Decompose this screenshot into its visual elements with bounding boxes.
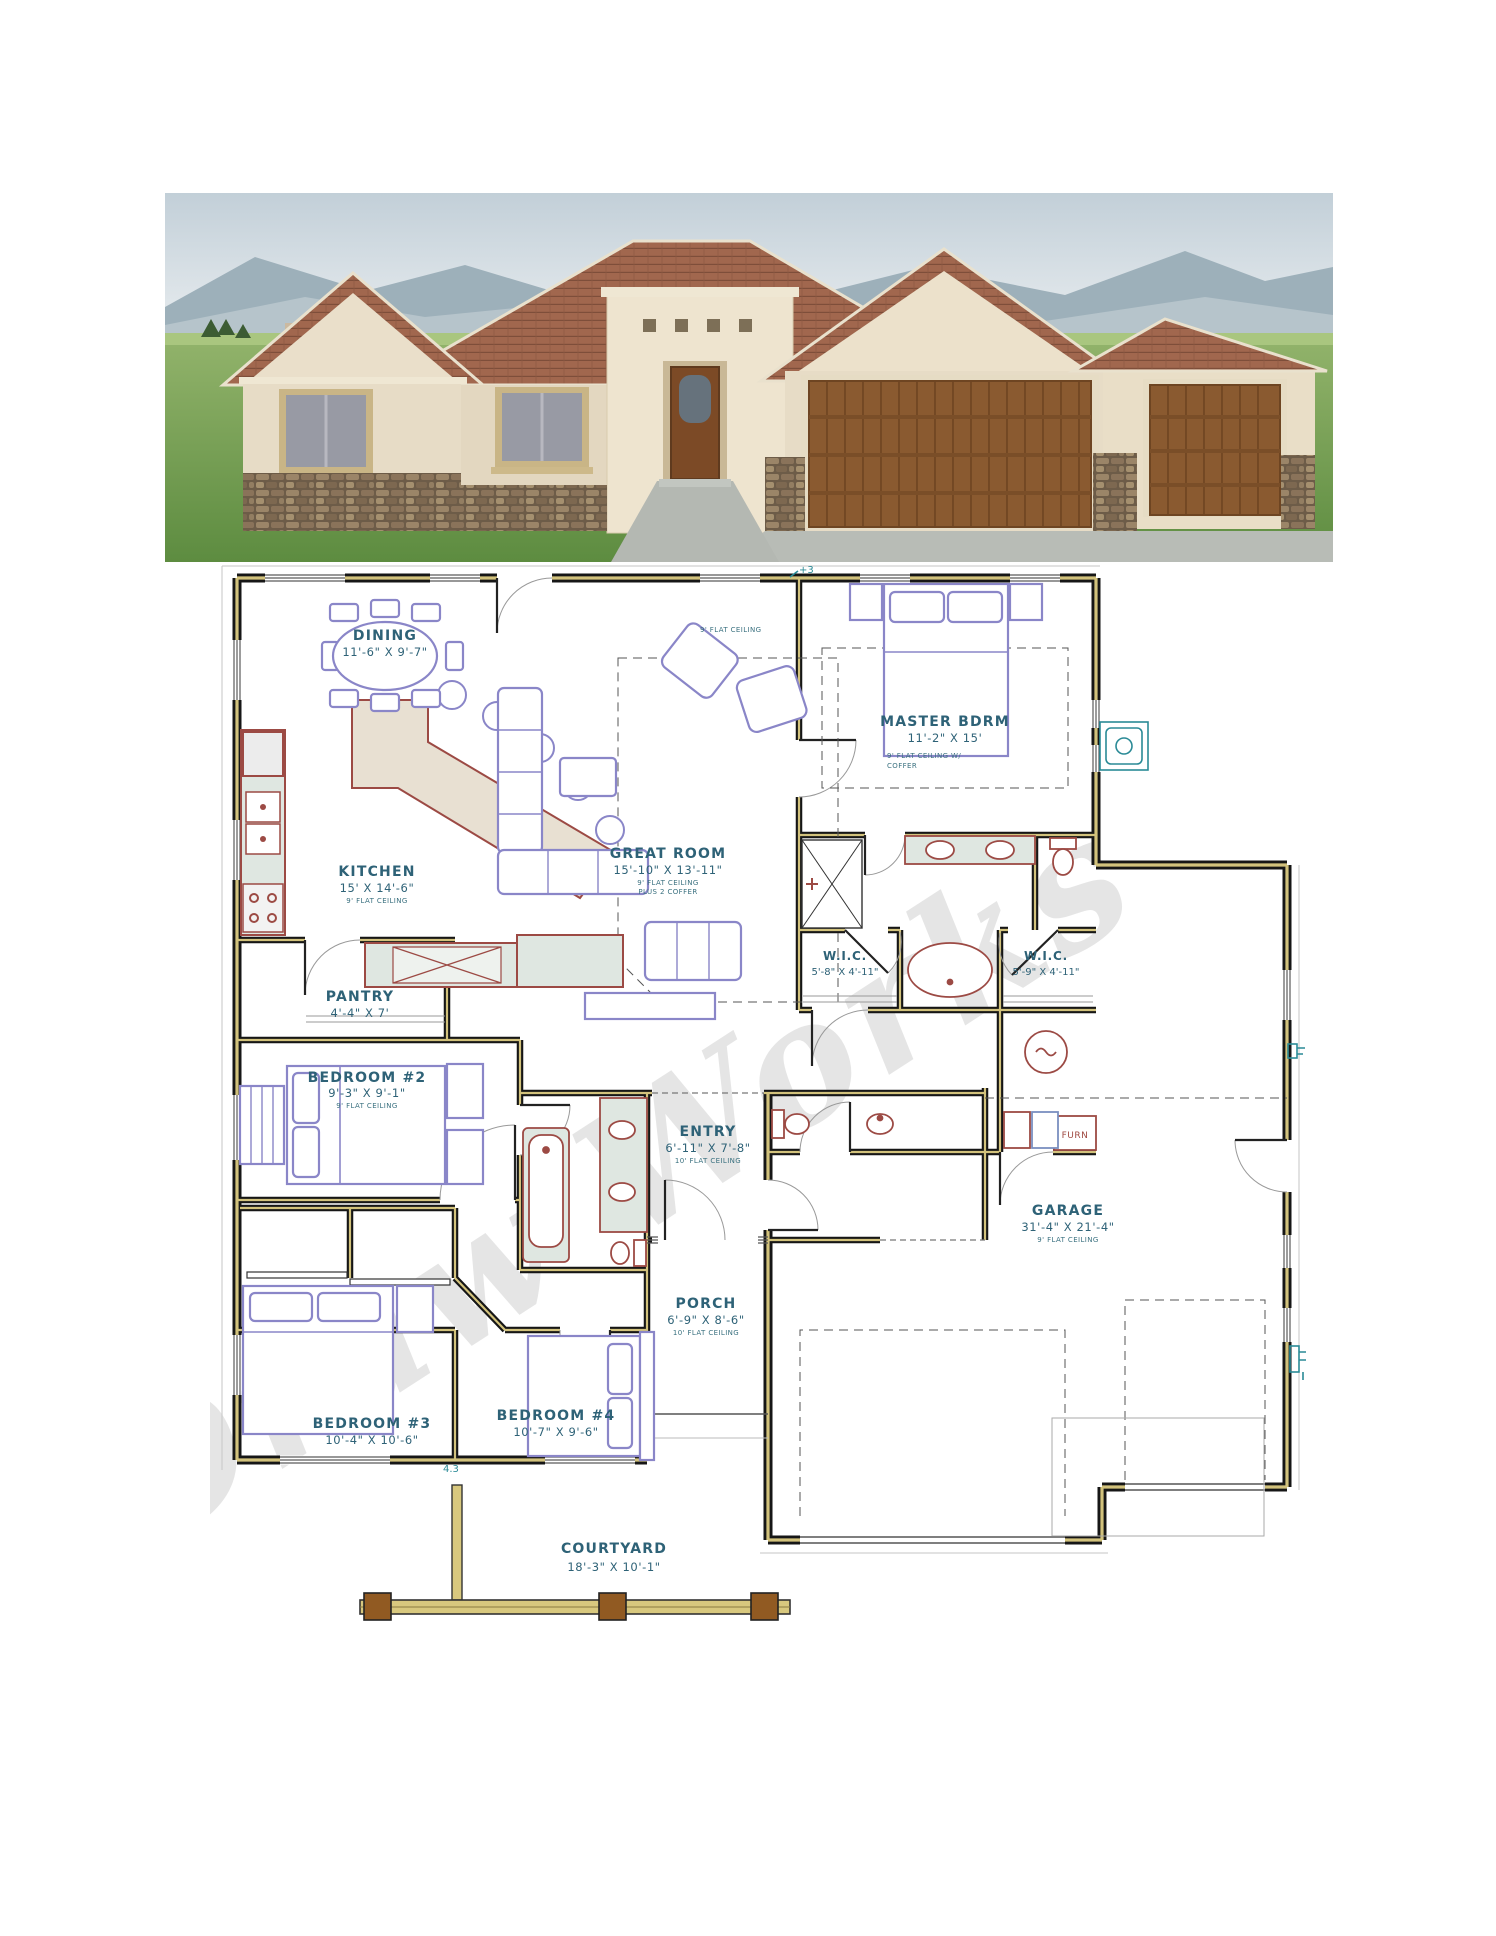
top-ceiling-note: 9' FLAT CEILING xyxy=(700,626,761,634)
room-dims-entry: 6'-11" X 7'-8" xyxy=(665,1141,750,1155)
room-label-entry: ENTRY xyxy=(680,1124,737,1140)
room-dims-wic-left: 5'-8" X 4'-11" xyxy=(812,967,879,978)
garage-door-large xyxy=(801,375,1099,527)
room-dims-bedroom4: 10'-7" X 9'-6" xyxy=(513,1425,598,1439)
room-label-wic-right: W.I.C. xyxy=(1024,949,1068,963)
room-note-garage: 9' FLAT CEILING xyxy=(1037,1236,1098,1244)
room-label-great-room: GREAT ROOM xyxy=(610,846,727,862)
room-note-porch: 10' FLAT CEILING xyxy=(673,1329,739,1337)
tower-cap xyxy=(601,287,799,297)
room-label-porch: PORCH xyxy=(676,1296,737,1312)
front-step xyxy=(659,479,731,487)
master-tub xyxy=(908,943,992,997)
room-label-pantry: PANTRY xyxy=(326,989,394,1005)
room-label-bedroom4: BEDROOM #4 xyxy=(497,1408,616,1424)
garage-overhead xyxy=(800,1098,1287,1516)
room-note2-master: COFFER xyxy=(887,762,917,770)
coffee-table xyxy=(560,758,616,796)
ac-condenser-icon xyxy=(1100,722,1148,770)
room-note-entry: 10' FLAT CEILING xyxy=(675,1157,741,1165)
room-dims-dining: 11'-6" X 9'-7" xyxy=(342,645,427,659)
water-heater xyxy=(1025,1031,1067,1073)
room-label-bedroom3: BEDROOM #3 xyxy=(313,1416,432,1432)
dryer xyxy=(1032,1112,1058,1148)
door-glass xyxy=(679,375,711,423)
window-sill xyxy=(491,467,593,474)
room-label-cour­tyard: COURTYARD xyxy=(561,1541,667,1557)
bedroom2-shelf xyxy=(240,1086,284,1164)
room-dims-wic-right: 5'-9" X 4'-11" xyxy=(1013,967,1080,978)
room-dims-master: 11'-2" X 15' xyxy=(908,731,983,745)
loveseat xyxy=(645,922,741,980)
house-3d-rendering xyxy=(165,185,1333,562)
hall-bath-tub xyxy=(523,1128,569,1262)
refrigerator xyxy=(243,732,283,776)
master-vanity xyxy=(905,836,1035,864)
rendering-scene xyxy=(165,193,1333,562)
closet-slider-right xyxy=(350,1279,450,1285)
room-dims-bedroom2: 9'-3" X 9'-1" xyxy=(328,1086,405,1100)
room-label-garage: GARAGE xyxy=(1032,1203,1104,1219)
room-label-master: MASTER BDRM xyxy=(880,714,1010,730)
room-label-bedroom2: BEDROOM #2 xyxy=(308,1070,427,1086)
left-eave-fascia xyxy=(239,377,467,384)
washer xyxy=(1004,1112,1030,1148)
room-dims-kitchen: 15' X 14'-6" xyxy=(340,881,415,895)
garage-door-small xyxy=(1143,379,1287,517)
room-label-kitchen: KITCHEN xyxy=(338,864,415,880)
elevation-mark-bottom: 4.3 xyxy=(443,1464,459,1475)
bedroom4-bed xyxy=(528,1332,654,1460)
room-note-master: 9' FLAT CEILING W/ xyxy=(887,752,961,760)
room-dims-garage: 31'-4" X 21'-4" xyxy=(1021,1220,1114,1234)
room-note2-great-room: PLUS 2 COFFER xyxy=(638,888,697,896)
master-shower xyxy=(802,840,862,928)
room-label-dining: DINING xyxy=(353,628,417,644)
tv-console xyxy=(585,993,715,1019)
room-note-kitchen: 9' FLAT CEILING xyxy=(346,897,407,905)
room-note-great-room: 9' FLAT CEILING xyxy=(637,879,698,887)
closet-slider-left xyxy=(247,1272,347,1278)
hall-bath-vanity xyxy=(600,1098,647,1232)
master-toilet xyxy=(1050,838,1076,875)
powder-sink xyxy=(867,1114,893,1134)
room-label-wic-left: W.I.C. xyxy=(823,949,867,963)
dishwasher-hatch xyxy=(393,947,501,983)
furnace-label: FURN xyxy=(1062,1131,1089,1141)
elevation-mark-top: +3 xyxy=(799,565,814,576)
courtyard-side-beam xyxy=(452,1485,462,1600)
room-note-bedroom2: 9' FLAT CEILING xyxy=(336,1102,397,1110)
room-dims-courtyard: 18'-3" X 10'-1" xyxy=(567,1560,660,1574)
garage-pad xyxy=(1052,1418,1264,1536)
panel-icon xyxy=(1290,1346,1306,1380)
range xyxy=(243,884,283,932)
floor-plan: Draw Works xyxy=(210,552,1332,1670)
room-dims-bedroom3: 10'-4" X 10'-6" xyxy=(325,1433,418,1447)
room-dims-porch: 6'-9" X 8'-6" xyxy=(667,1313,744,1327)
room-dims-great-room: 15'-10" X 13'-11" xyxy=(613,863,722,877)
room-dims-pantry: 4'-4" X 7' xyxy=(331,1006,390,1020)
